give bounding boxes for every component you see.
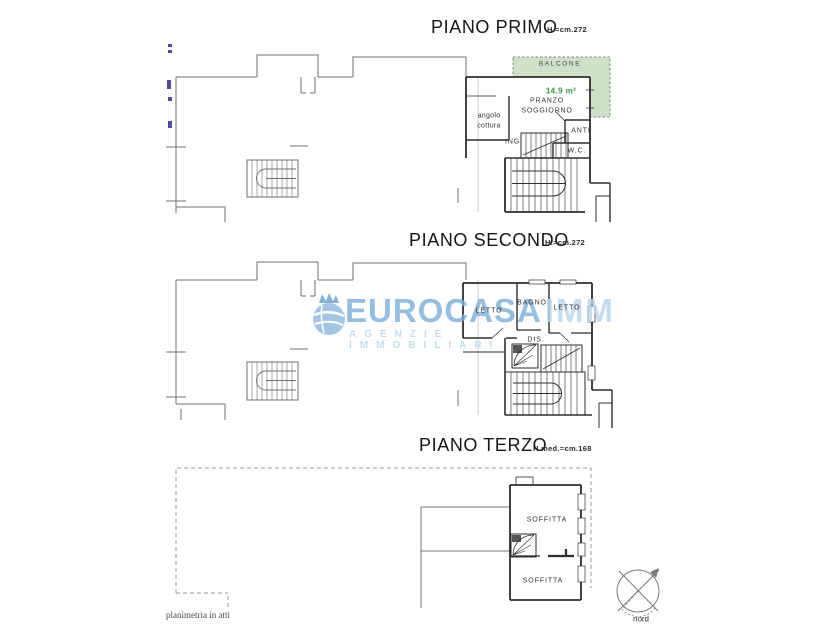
room-label-balcone: BALCONE bbox=[539, 61, 581, 68]
floor1-title: PIANO PRIMO bbox=[431, 17, 558, 38]
room-label-ing: ING. bbox=[505, 139, 523, 146]
room-label-soffitta-upper: SOFFITTA bbox=[527, 517, 568, 524]
room-label-wc: W.C. bbox=[568, 148, 587, 155]
room-label-soffitta-lower: SOFFITTA bbox=[523, 578, 564, 585]
floor1-height-label: H.=cm.272 bbox=[547, 25, 587, 34]
room-label-bagno: BAGNO bbox=[517, 300, 547, 307]
balcony-area-value: 14.9 m² bbox=[546, 87, 576, 96]
floor1-left-building bbox=[166, 55, 478, 222]
room-label-angolo-cottura: angolo cottura bbox=[477, 112, 501, 131]
room-label-letto-left: LETTO bbox=[476, 308, 503, 315]
room-label-anti: ANTI bbox=[571, 128, 591, 135]
floor2-left-building bbox=[166, 262, 478, 420]
floor3-height-label: H.med.=cm.168 bbox=[533, 444, 592, 453]
floorplan-linework bbox=[0, 0, 840, 630]
compass-label: nord bbox=[633, 615, 649, 624]
scan-binding-marks bbox=[167, 44, 172, 128]
floorplan-document: EUROCASA IMM AGENZIE IMMOBILIARI PIANO P… bbox=[0, 0, 840, 630]
floor3-title: PIANO TERZO bbox=[419, 435, 547, 456]
floor3-plan bbox=[176, 468, 591, 608]
plan-note: planimetria in atti bbox=[166, 610, 230, 620]
compass-icon bbox=[617, 568, 659, 617]
room-label-dis: DIS. bbox=[527, 337, 544, 344]
floor1-apartment bbox=[466, 57, 610, 222]
room-label-pranzo-soggiorno: PRANZO SOGGIORNO bbox=[521, 97, 572, 116]
floor2-height-label: H.=cm.272 bbox=[545, 238, 585, 247]
room-label-letto-right: LETTO bbox=[554, 305, 581, 312]
